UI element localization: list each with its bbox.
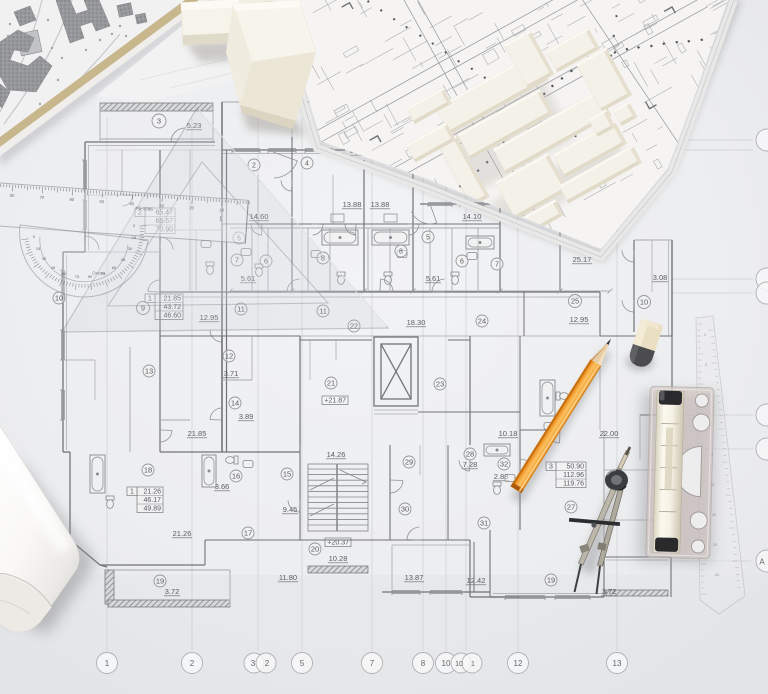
svg-text:40: 40 [715,572,720,577]
svg-text:45: 45 [51,265,56,270]
svg-text:17: 17 [244,529,252,538]
svg-text:46.17: 46.17 [143,497,161,504]
svg-text:6: 6 [460,259,464,266]
svg-text:21.85: 21.85 [188,429,207,438]
svg-text:19: 19 [156,577,164,586]
svg-text:24: 24 [478,317,486,326]
svg-text:27: 27 [567,503,575,512]
svg-text:5: 5 [426,235,430,242]
svg-text:Океан: Океан [92,271,106,276]
svg-text:10: 10 [55,294,63,303]
svg-text:15: 15 [132,235,137,240]
svg-text:3.71: 3.71 [224,369,239,378]
svg-text:12: 12 [514,659,523,668]
svg-text:3: 3 [157,117,161,126]
svg-text:22.00: 22.00 [600,429,619,438]
svg-text:28: 28 [466,450,474,459]
svg-text:30: 30 [42,256,47,261]
svg-text:1: 1 [105,659,110,668]
svg-text:1: 1 [130,489,134,496]
svg-text:23: 23 [436,380,444,389]
svg-text:5.61: 5.61 [426,274,441,283]
svg-text:14.10: 14.10 [463,212,482,221]
svg-text:30: 30 [128,246,133,251]
svg-text:3.08: 3.08 [653,273,668,282]
svg-text:10: 10 [455,661,463,668]
svg-text:8: 8 [421,659,426,668]
svg-text:12.95: 12.95 [570,315,589,324]
svg-text:21.26: 21.26 [143,489,161,496]
svg-text:119.76: 119.76 [563,481,584,488]
svg-text:29: 29 [405,458,413,467]
svg-text:7: 7 [370,659,375,668]
svg-text:75: 75 [75,274,80,279]
svg-text:32: 32 [500,460,508,469]
svg-text:2: 2 [190,659,195,668]
svg-text:8: 8 [399,249,403,256]
svg-text:+20.37: +20.37 [327,540,349,547]
svg-text:2: 2 [265,659,270,668]
svg-text:13.87: 13.87 [405,573,424,582]
svg-text:31: 31 [480,519,488,528]
svg-text:14.26: 14.26 [327,450,346,459]
svg-text:+21.87: +21.87 [324,398,346,405]
svg-text:12: 12 [225,352,233,361]
svg-text:30: 30 [401,505,409,514]
svg-text:49.89: 49.89 [143,506,161,513]
svg-text:3.72: 3.72 [165,587,180,596]
svg-text:45: 45 [121,257,126,262]
svg-text:5: 5 [300,659,305,668]
svg-text:19: 19 [547,576,555,585]
svg-text:10.28: 10.28 [329,554,348,563]
svg-text:10: 10 [442,659,451,668]
svg-text:50.90: 50.90 [566,464,584,471]
svg-text:10.18: 10.18 [499,429,518,438]
svg-text:11.80: 11.80 [279,573,297,582]
svg-text:3: 3 [549,464,553,471]
svg-text:13: 13 [613,659,622,668]
svg-text:15: 15 [36,246,41,251]
svg-text:18: 18 [144,466,152,475]
svg-text:10: 10 [640,298,648,307]
svg-text:3.66: 3.66 [215,482,230,491]
svg-text:20: 20 [311,545,319,554]
svg-text:4: 4 [305,161,309,168]
svg-text:2: 2 [252,163,256,170]
svg-text:15: 15 [283,470,291,479]
svg-text:21: 21 [327,379,335,388]
svg-text:7: 7 [495,262,499,269]
svg-text:13.88: 13.88 [371,200,390,209]
svg-text:13.88: 13.88 [343,200,362,209]
svg-text:60: 60 [62,271,67,276]
svg-text:12.42: 12.42 [467,576,486,585]
svg-text:16: 16 [232,472,240,481]
svg-text:18.30: 18.30 [407,318,426,327]
svg-text:A: A [759,558,765,567]
svg-text:25: 25 [571,297,579,306]
svg-text:3.89: 3.89 [239,412,254,421]
svg-text:3: 3 [251,659,256,668]
svg-text:3.72: 3.72 [602,587,617,596]
svg-text:60: 60 [112,265,117,270]
svg-text:35: 35 [713,542,718,547]
svg-text:1: 1 [471,661,475,668]
svg-text:21.26: 21.26 [173,529,192,538]
svg-text:14: 14 [231,399,239,408]
svg-text:112.96: 112.96 [563,472,584,479]
svg-text:13: 13 [145,367,153,376]
